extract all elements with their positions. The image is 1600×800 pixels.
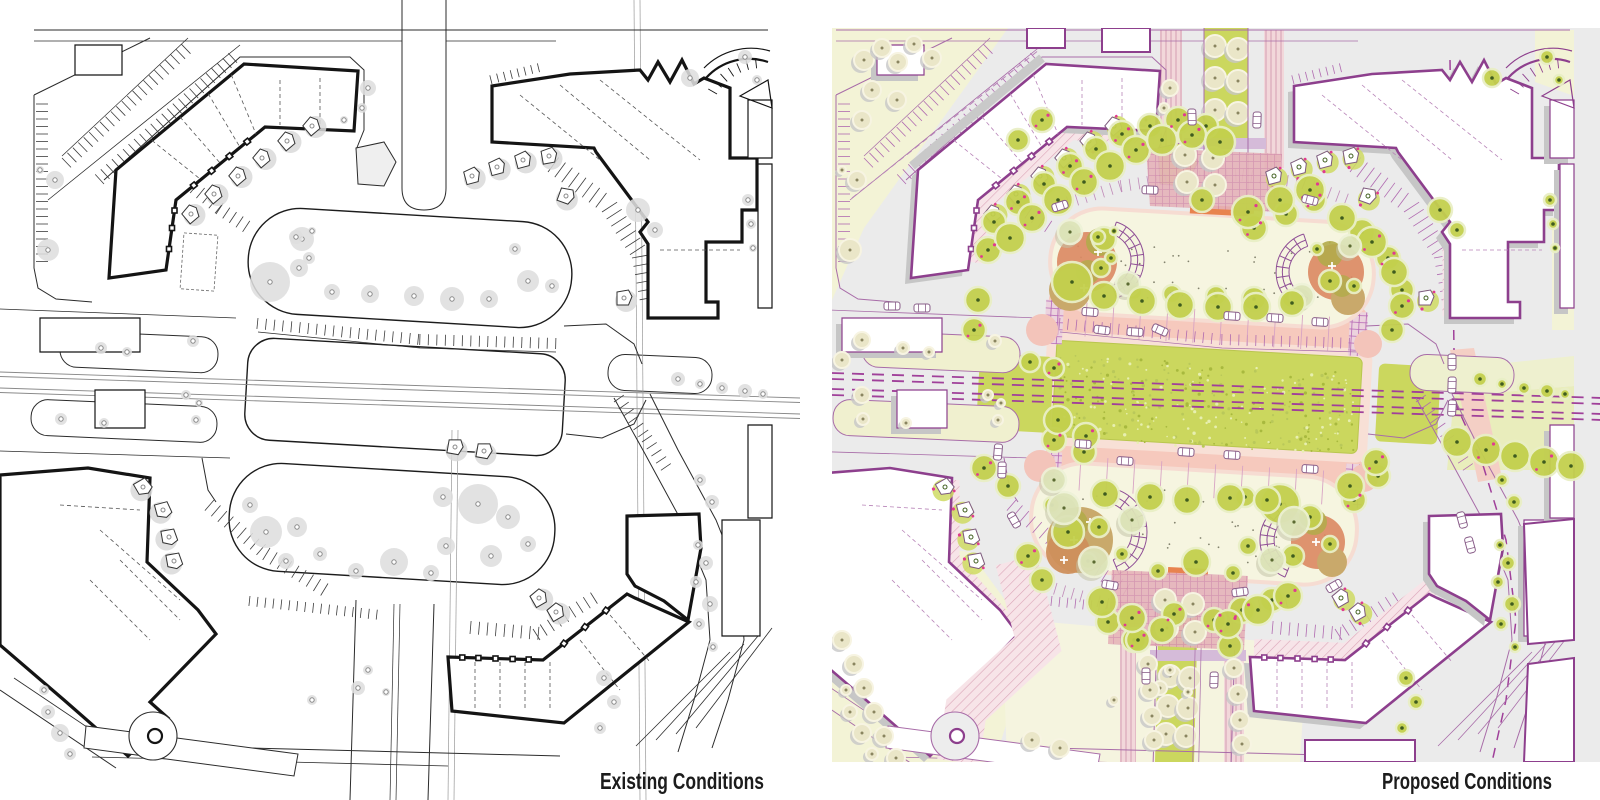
svg-text:Proposed Conditions: Proposed Conditions: [1382, 768, 1552, 794]
svg-text:Existing Conditions: Existing Conditions: [600, 768, 764, 794]
